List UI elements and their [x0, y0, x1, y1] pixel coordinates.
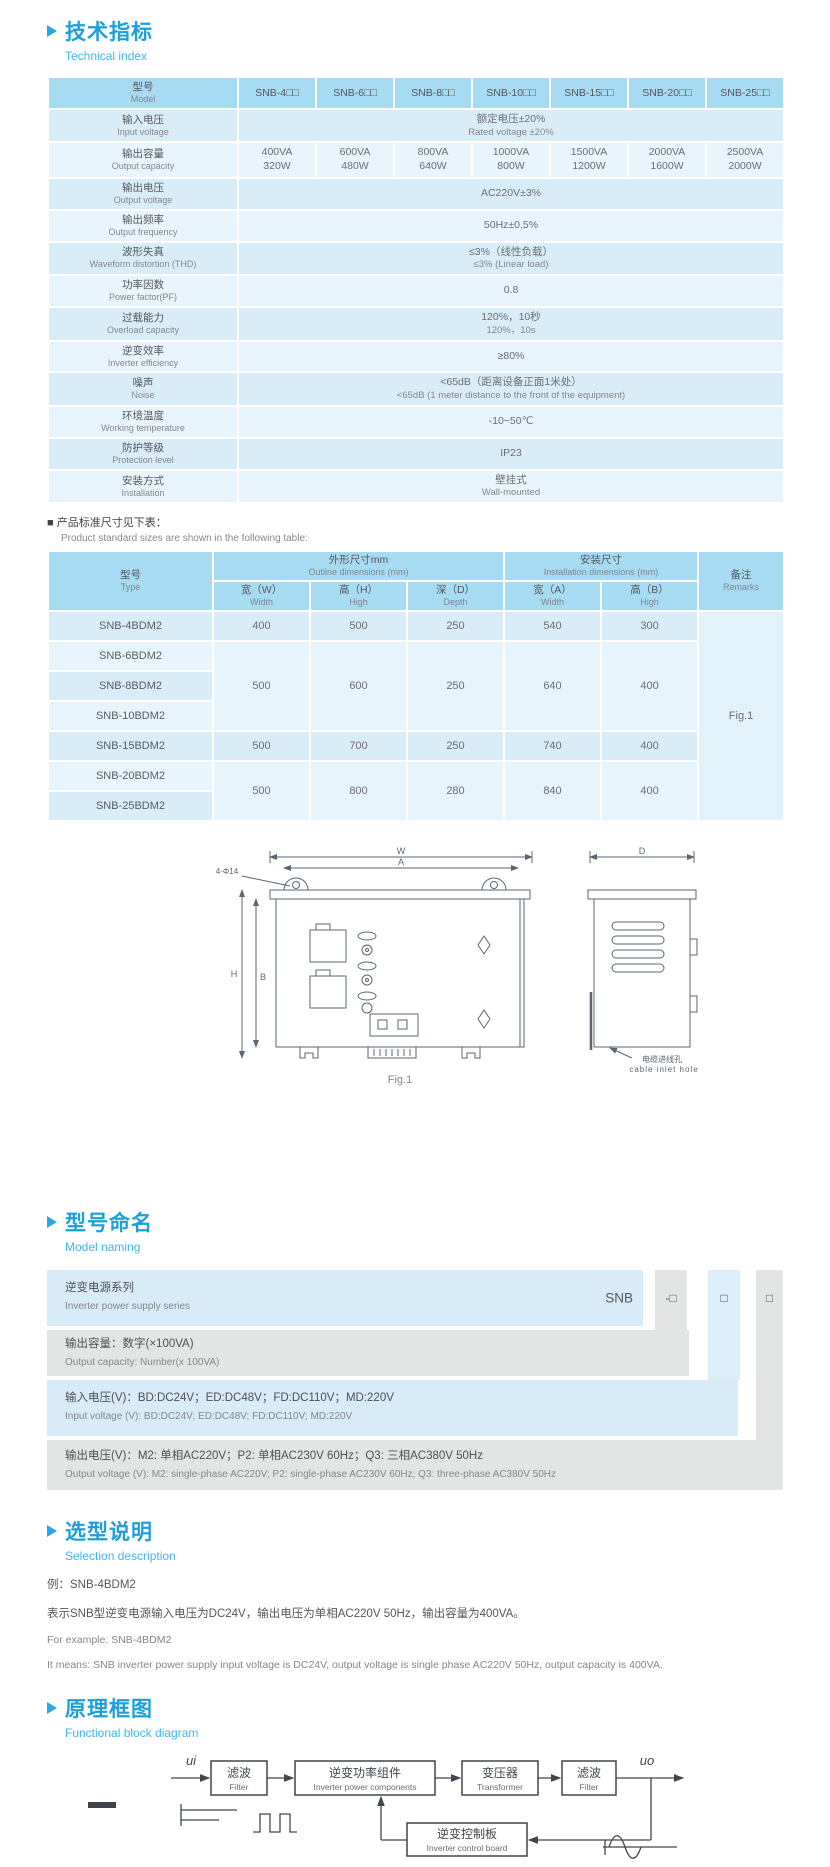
- dims-header-width: 宽（W）Width: [213, 581, 310, 611]
- transformer-label-cn: 变压器: [482, 1765, 518, 1780]
- figure-caption: Fig.1: [388, 1074, 412, 1086]
- dims-remark: Fig.1: [698, 611, 784, 821]
- arrow-icon: [47, 25, 57, 37]
- model-column: SNB-4□□: [238, 77, 316, 109]
- model-column: SNB-8□□: [394, 77, 472, 109]
- dims-header-depth: 深（D）Depth: [407, 581, 504, 611]
- dim-label-d: D: [639, 846, 646, 856]
- dimensions-table: 型号Type 外形尺寸mmOutline dimensions (mm) 安装尺…: [47, 550, 785, 822]
- holes-label: 4-Φ14: [216, 867, 239, 876]
- section-heading: 型号命名: [47, 1207, 783, 1237]
- model-column: SNB-10□□: [472, 77, 550, 109]
- dims-header-a: 宽（A）Width: [504, 581, 601, 611]
- section-title-cn: 原理框图: [65, 1693, 153, 1723]
- naming-row-output-voltage: 输出电压(V)：M2: 单相AC220V；P2: 单相AC230V 60Hz；Q…: [47, 1440, 783, 1490]
- diagram-labels: ui uo 滤波 Filter 逆变功率组件 Inverter power co…: [186, 1753, 654, 1853]
- spec-row-output-frequency: 输出频率Output frequency 50Hz±0.5%: [48, 210, 784, 242]
- figure-labels: W A D H B 4-Φ14 电缆进线孔 cable inlet hole F…: [216, 846, 699, 1086]
- section-heading: 选型说明: [47, 1516, 783, 1546]
- dims-note-en: Product standard sizes are shown in the …: [61, 533, 783, 544]
- inverter-label-cn: 逆变功率组件: [329, 1765, 401, 1780]
- spec-row-efficiency: 逆变效率Inverter efficiency ≥80%: [48, 341, 784, 373]
- section-technical-index: 技术指标 Technical index 型号 Model SNB-4□□ SN…: [47, 16, 783, 1091]
- filter1-label-cn: 滤波: [227, 1766, 251, 1780]
- spec-row-noise: 噪声Noise <65dB（距离设备正面1米处）<65dB (1 meter d…: [48, 372, 784, 406]
- series-code: SNB: [605, 1291, 633, 1306]
- cable-inlet-label-cn: 电缆进线孔: [642, 1054, 682, 1064]
- section-title-en: Model naming: [65, 1240, 783, 1254]
- dim-label-h: H: [231, 969, 238, 979]
- section-heading: 原理框图: [47, 1693, 783, 1723]
- dims-header-row-1: 型号Type 外形尺寸mmOutline dimensions (mm) 安装尺…: [48, 551, 784, 581]
- dim-label-a: A: [398, 857, 404, 867]
- section-heading: 技术指标: [47, 16, 783, 46]
- control-label-cn: 逆变控制板: [437, 1826, 497, 1841]
- filter2-label-en: Filter: [580, 1782, 599, 1792]
- table-row: SNB-15BDM2 500 700 250 740 400: [48, 731, 784, 761]
- section-model-naming: 型号命名 Model naming -□ □ □ 逆变电源系列 Inverter…: [47, 1207, 783, 1490]
- section-title-en: Functional block diagram: [65, 1726, 783, 1740]
- naming-box-3: □: [756, 1270, 783, 1326]
- dims-header-outline: 外形尺寸mmOutline dimensions (mm): [213, 551, 504, 581]
- arrow-icon: [47, 1702, 57, 1714]
- spec-row-output-capacity: 输出容量Output capacity 400VA320W 600VA480W …: [48, 142, 784, 177]
- model-naming-ladder: -□ □ □ 逆变电源系列 Inverter power supply seri…: [47, 1270, 783, 1490]
- section-selection-description: 选型说明 Selection description 例：SNB-4BDM2 表…: [47, 1516, 783, 1671]
- inverter-label-en: Inverter power components: [314, 1782, 417, 1792]
- dims-header-b: 高（B）High: [601, 581, 698, 611]
- arrow-icon: [47, 1216, 57, 1228]
- dims-header-type: 型号Type: [48, 551, 213, 611]
- spec-row-installation: 安装方式Installation 壁挂式Wall-mounted: [48, 470, 784, 504]
- product-dimension-drawing: W A D H B 4-Φ14 电缆进线孔 cable inlet hole F…: [212, 844, 732, 1086]
- model-column: SNB-6□□: [316, 77, 394, 109]
- transformer-label-en: Transformer: [477, 1782, 523, 1792]
- section-title-cn: 型号命名: [65, 1207, 153, 1237]
- naming-row-capacity: 输出容量：数字(×100VA) Output capacity: Number(…: [47, 1330, 689, 1376]
- dim-label-b: B: [260, 972, 266, 982]
- spec-row-temperature: 环境温度Working temperature -10~50℃: [48, 406, 784, 438]
- selection-meaning-cn: 表示SNB型逆变电源输入电压为DC24V，输出电压为单相AC220V 50Hz，…: [47, 1605, 783, 1621]
- selection-example-en: For example: SNB-4BDM2: [47, 1634, 783, 1646]
- filter2-label-cn: 滤波: [577, 1766, 601, 1780]
- page-content: 技术指标 Technical index 型号 Model SNB-4□□ SN…: [0, 0, 830, 1867]
- spec-row-waveform-distortion: 波形失真Waveform distortion (THD) ≤3%（线性负载）≤…: [48, 242, 784, 276]
- dims-note-cn: ■ 产品标准尺寸见下表：: [47, 514, 783, 530]
- section-block-diagram: 原理框图 Functional block diagram: [47, 1693, 783, 1867]
- section-title-cn: 选型说明: [65, 1516, 153, 1546]
- model-column: SNB-20□□: [628, 77, 706, 109]
- naming-row-input-voltage: 输入电压(V)：BD:DC24V；ED:DC48V；FD:DC110V；MD:2…: [47, 1380, 738, 1436]
- section-title-en: Technical index: [65, 49, 783, 63]
- uo-label: uo: [640, 1753, 654, 1768]
- model-column: SNB-25□□: [706, 77, 784, 109]
- spec-row-protection: 防护等级Protection level IP23: [48, 438, 784, 470]
- dim-label-w: W: [397, 846, 406, 856]
- model-column: SNB-15□□: [550, 77, 628, 109]
- selection-meaning-en: It means: SNB inverter power supply inpu…: [47, 1659, 783, 1671]
- spec-row-input-voltage: 输入电压Input voltage 额定电压±20%Rated voltage …: [48, 109, 784, 143]
- spec-header-model: 型号 Model: [48, 77, 238, 109]
- front-view: [242, 851, 532, 1058]
- spec-header-row: 型号 Model SNB-4□□ SNB-6□□ SNB-8□□ SNB-10□…: [48, 77, 784, 109]
- filter1-label-en: Filter: [230, 1782, 249, 1792]
- table-row: SNB-4BDM2 400 500 250 540 300 Fig.1: [48, 611, 784, 641]
- technical-spec-table: 型号 Model SNB-4□□ SNB-6□□ SNB-8□□ SNB-10□…: [47, 76, 785, 504]
- block-diagram-svg: ui uo 滤波 Filter 逆变功率组件 Inverter power co…: [167, 1748, 687, 1862]
- page-footer-mark: [88, 1802, 116, 1808]
- dims-header-high: 高（H）High: [310, 581, 407, 611]
- dims-header-install: 安装尺寸Installation dimensions (mm): [504, 551, 698, 581]
- figure-1: W A D H B 4-Φ14 电缆进线孔 cable inlet hole F…: [212, 844, 783, 1091]
- spec-row-output-voltage: 输出电压Output voltage AC220V±3%: [48, 178, 784, 210]
- naming-box-2: □: [708, 1270, 740, 1326]
- arrow-icon: [47, 1525, 57, 1537]
- spec-row-overload: 过载能力Overload capacity 120%，10秒120%，10s: [48, 307, 784, 341]
- cable-inlet-label-en: cable inlet hole: [629, 1065, 698, 1074]
- section-title-cn: 技术指标: [65, 16, 153, 46]
- dims-header-remarks: 备注Remarks: [698, 551, 784, 611]
- table-row: SNB-6BDM2 500 600 250 640 400: [48, 641, 784, 671]
- table-row: SNB-20BDM2 500 800 280 840 400: [48, 761, 784, 791]
- control-label-en: Inverter control board: [427, 1843, 508, 1853]
- selection-example-cn: 例：SNB-4BDM2: [47, 1576, 783, 1592]
- naming-row-series: 逆变电源系列 Inverter power supply series SNB: [47, 1270, 643, 1326]
- side-view: [588, 851, 697, 1058]
- naming-box-1: -□: [655, 1270, 687, 1326]
- ui-label: ui: [186, 1753, 197, 1768]
- spec-row-power-factor: 功率因数Power factor(PF) 0.8: [48, 275, 784, 307]
- section-title-en: Selection description: [65, 1549, 783, 1563]
